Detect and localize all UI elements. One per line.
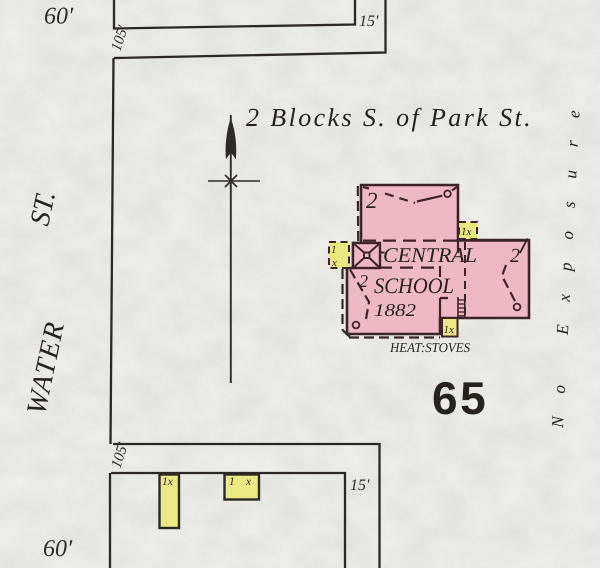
svg-text:60′: 60′ bbox=[44, 4, 74, 30]
svg-text:CENTRAL: CENTRAL bbox=[383, 243, 477, 267]
svg-text:60′: 60′ bbox=[43, 536, 73, 562]
svg-text:x: x bbox=[245, 476, 252, 488]
svg-text:1x: 1x bbox=[162, 476, 174, 488]
svg-text:2: 2 bbox=[359, 271, 368, 291]
svg-text:1: 1 bbox=[331, 244, 337, 256]
svg-text:2: 2 bbox=[510, 245, 520, 267]
svg-text:15′: 15′ bbox=[350, 477, 370, 494]
svg-text:65: 65 bbox=[432, 372, 488, 424]
svg-text:1x: 1x bbox=[444, 324, 455, 336]
svg-text:SCHOOL: SCHOOL bbox=[374, 273, 454, 298]
svg-text:HEAT:STOVES: HEAT:STOVES bbox=[389, 340, 470, 355]
svg-text:1x: 1x bbox=[461, 226, 472, 238]
svg-text:x: x bbox=[331, 257, 337, 269]
svg-text:1882: 1882 bbox=[374, 300, 416, 320]
svg-text:15′: 15′ bbox=[359, 13, 379, 30]
svg-text:2 Blocks S. of Park St.: 2 Blocks S. of Park St. bbox=[246, 103, 533, 132]
svg-text:2: 2 bbox=[366, 188, 378, 213]
svg-text:1: 1 bbox=[229, 476, 235, 488]
